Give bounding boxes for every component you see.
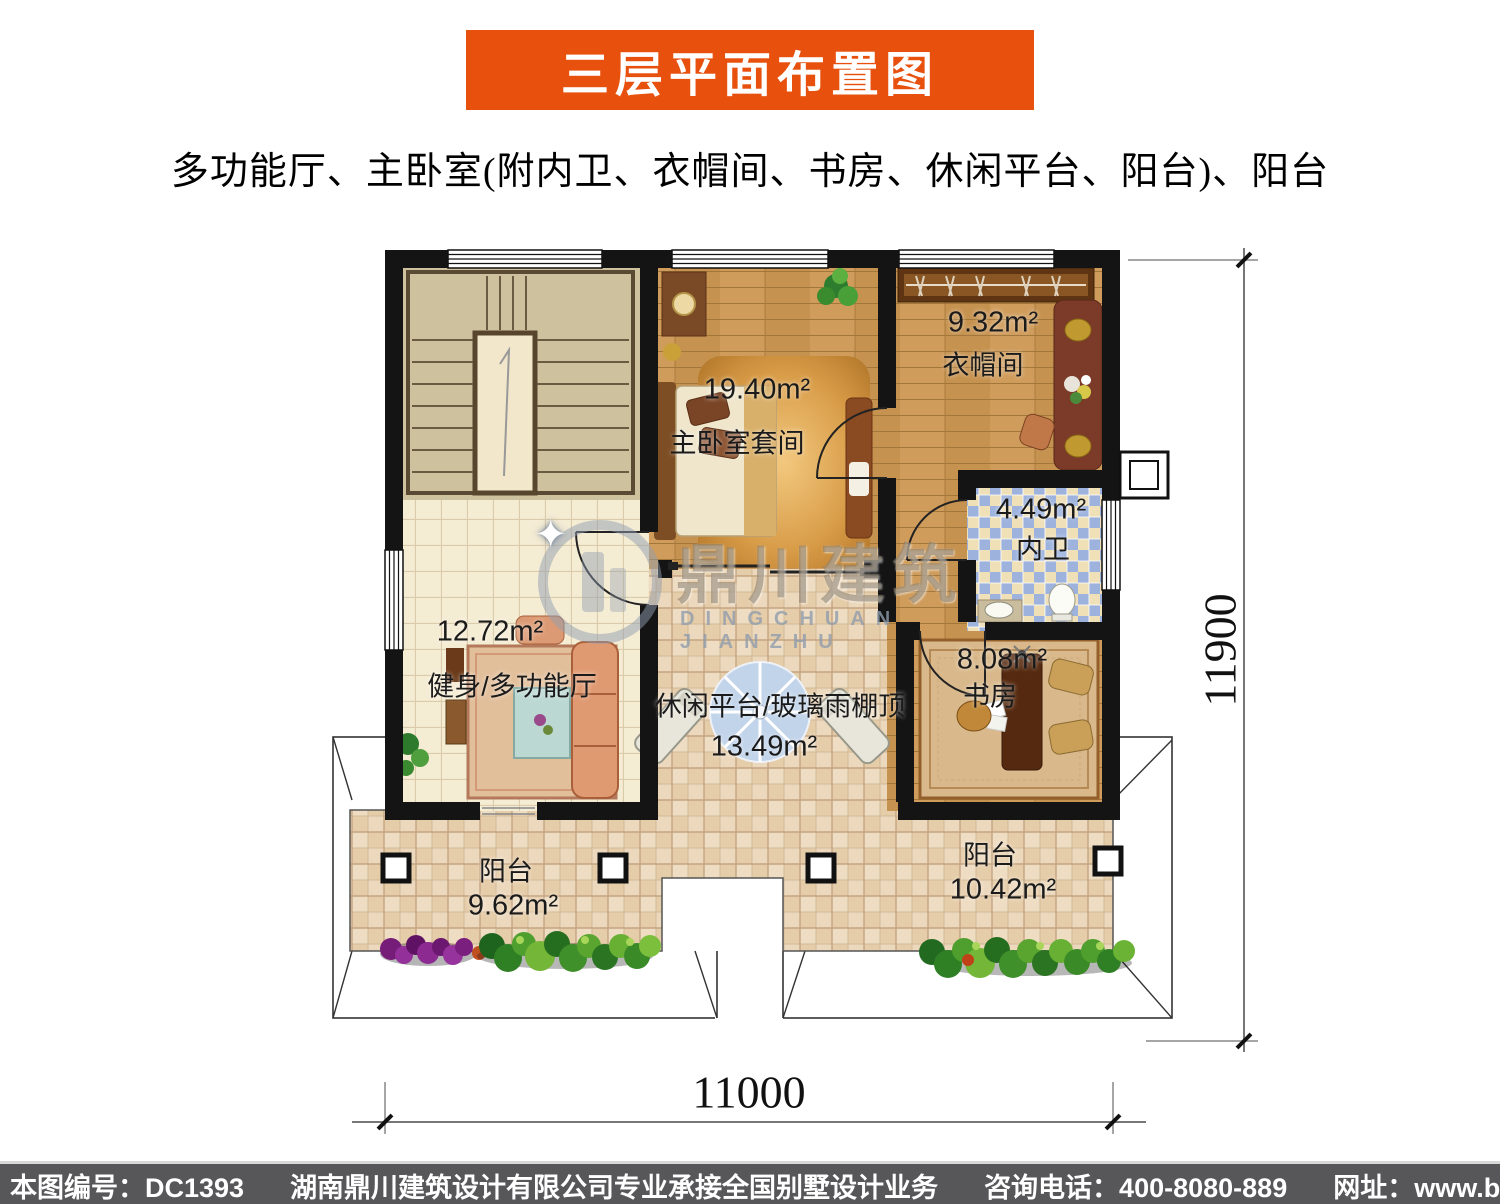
- room-name-master: 主卧室套间: [670, 422, 805, 461]
- room-name-bath: 内卫: [1016, 528, 1070, 567]
- room-area-balcony-right: 10.42m²: [950, 874, 1056, 907]
- footer-sheet-number: 本图编号：DC1393: [10, 1166, 244, 1204]
- room-area-gym: 12.72m²: [437, 616, 543, 649]
- footer-phone: 咨询电话：400-8080-889: [984, 1166, 1287, 1204]
- footer-bar: 本图编号：DC1393 湖南鼎川建筑设计有限公司专业承接全国别墅设计业务 咨询电…: [0, 1161, 1500, 1204]
- room-area-master: 19.40m²: [704, 374, 810, 407]
- room-name-balcony-left: 阳台: [479, 850, 533, 889]
- room-area-bath: 4.49m²: [996, 494, 1086, 527]
- room-area-study: 8.08m²: [957, 644, 1047, 677]
- room-name-cloak: 衣帽间: [943, 344, 1024, 383]
- room-name-gym: 健身/多功能厅: [427, 665, 597, 704]
- room-area-platform: 13.49m²: [711, 731, 817, 764]
- room-name-platform: 休闲平台/玻璃雨棚顶: [655, 685, 906, 724]
- room-name-balcony-right: 阳台: [963, 834, 1017, 873]
- room-area-balcony-left: 9.62m²: [468, 890, 558, 923]
- floor-plan: [0, 0, 1500, 1204]
- dimension-right: 11900: [1194, 593, 1247, 706]
- room-area-cloak: 9.32m²: [948, 307, 1038, 340]
- footer-company: 湖南鼎川建筑设计有限公司专业承接全国别墅设计业务: [290, 1166, 938, 1204]
- dimension-bottom: 11000: [692, 1066, 805, 1119]
- room-name-study: 书房: [963, 675, 1017, 714]
- page: 三层平面布置图 多功能厅、主卧室(附内卫、衣帽间、书房、休闲平台、阳台)、阳台: [0, 0, 1500, 1204]
- footer-website: 网址：www.bstzcs.com: [1333, 1166, 1500, 1204]
